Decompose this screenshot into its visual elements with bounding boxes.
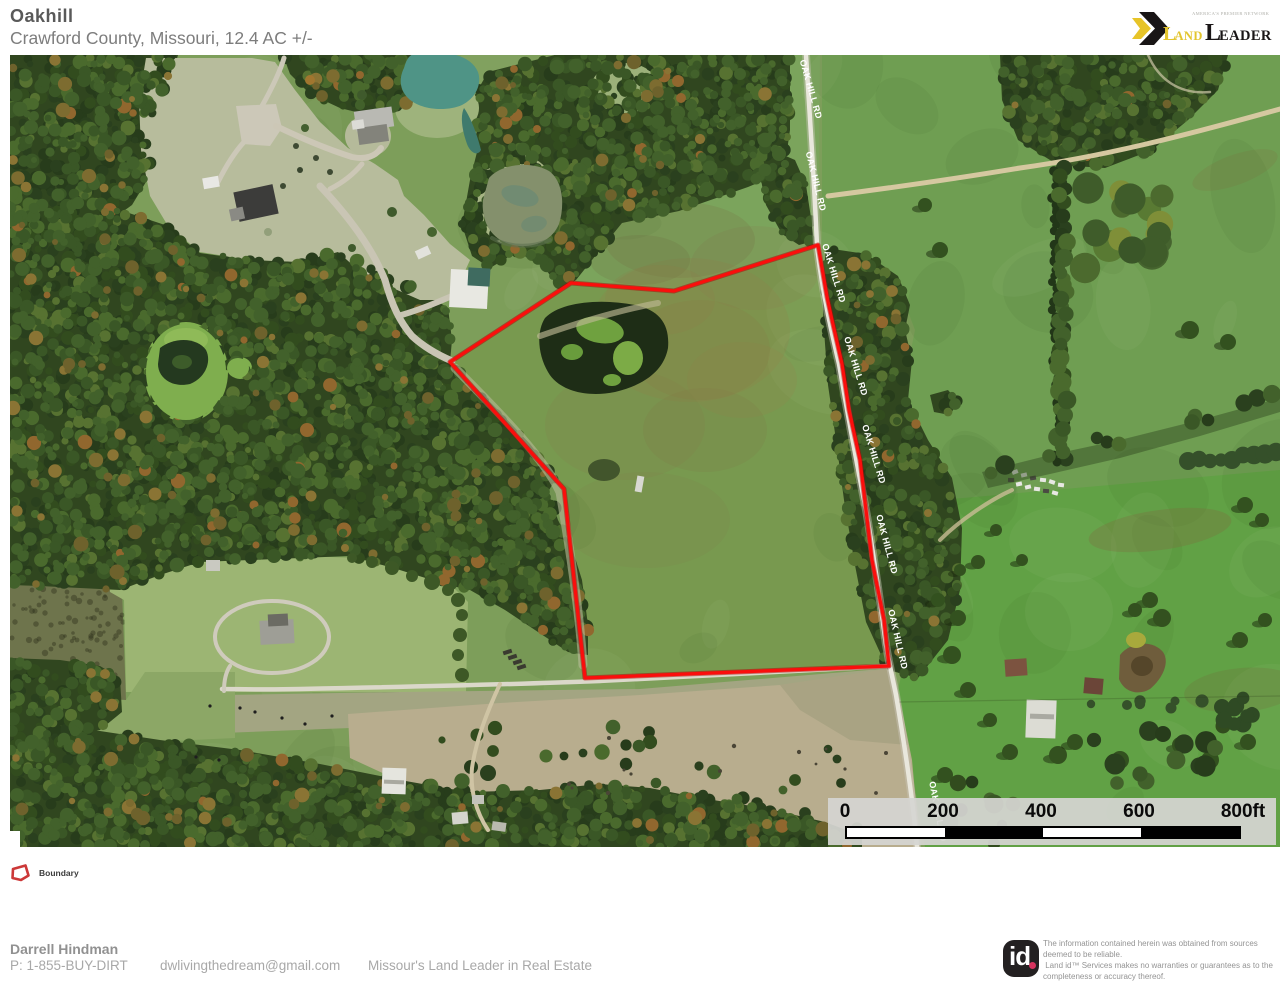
svg-text:EADER: EADER bbox=[1219, 28, 1272, 44]
svg-text:AMERICA'S PREMIER NETWORK: AMERICA'S PREMIER NETWORK bbox=[1192, 11, 1270, 16]
svg-text:AND: AND bbox=[1175, 29, 1203, 43]
